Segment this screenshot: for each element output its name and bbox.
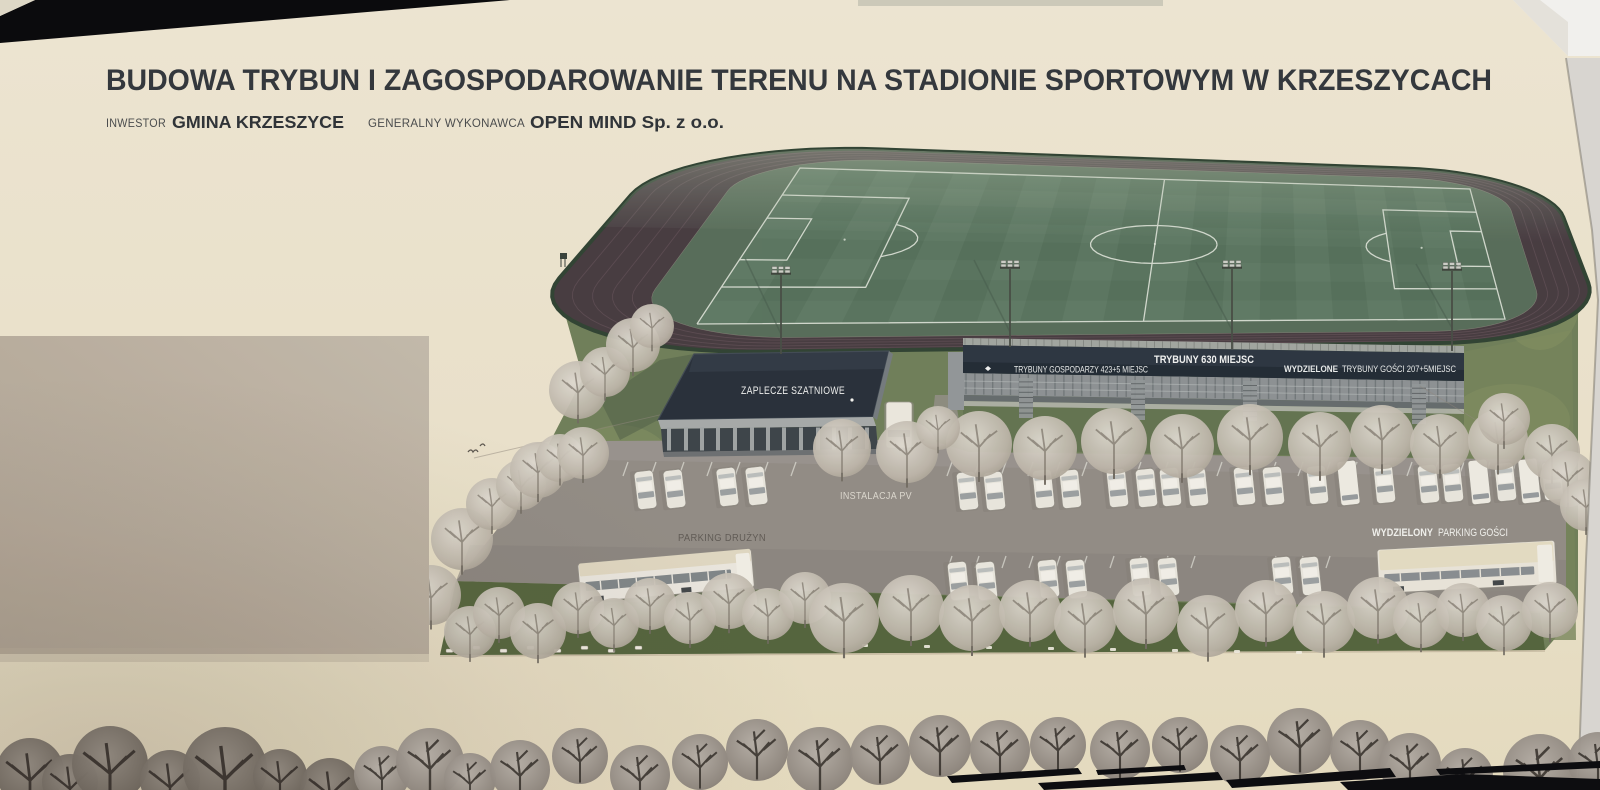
svg-text:INWESTOR: INWESTOR	[106, 116, 166, 130]
svg-text:GENERALNY WYKONAWCA: GENERALNY WYKONAWCA	[368, 116, 525, 130]
svg-text:GMINA KRZESZYCE: GMINA KRZESZYCE	[172, 112, 344, 132]
svg-text:BUDOWA TRYBUN I ZAGOSPODAROWAN: BUDOWA TRYBUN I ZAGOSPODAROWANIE TERENU …	[106, 64, 1492, 97]
svg-text:OPEN MIND Sp. z o.o.: OPEN MIND Sp. z o.o.	[530, 112, 724, 132]
